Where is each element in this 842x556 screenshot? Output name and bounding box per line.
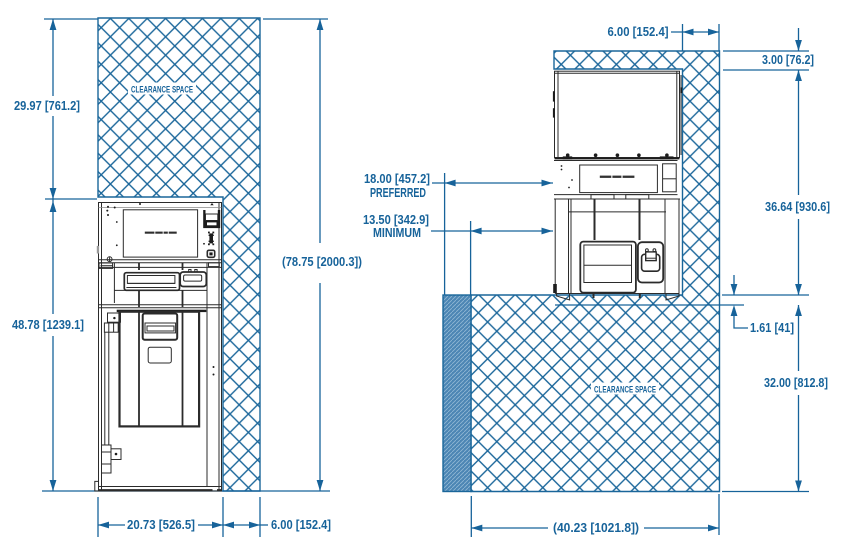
svg-text:PREFERRED: PREFERRED: [370, 185, 426, 200]
svg-text:18.00 [457.2]: 18.00 [457.2]: [364, 171, 430, 186]
svg-text:MINIMUM: MINIMUM: [373, 225, 421, 240]
svg-text:6.00 [152.4]: 6.00 [152.4]: [271, 517, 331, 532]
svg-text:36.64 [930.6]: 36.64 [930.6]: [765, 199, 830, 214]
svg-text:20.73 [526.5]: 20.73 [526.5]: [127, 517, 195, 532]
svg-text:CLEARANCE SPACE: CLEARANCE SPACE: [131, 84, 193, 94]
svg-text:(78.75 [2000.3]): (78.75 [2000.3]): [282, 254, 362, 269]
svg-text:6.00 [152.4]: 6.00 [152.4]: [608, 24, 669, 39]
svg-text:29.97 [761.2]: 29.97 [761.2]: [14, 98, 80, 113]
svg-text:1.61 [41]: 1.61 [41]: [750, 320, 794, 335]
svg-text:CLEARANCE SPACE: CLEARANCE SPACE: [594, 384, 656, 394]
svg-text:3.00 [76.2]: 3.00 [76.2]: [762, 52, 814, 67]
svg-text:48.78 [1239.1]: 48.78 [1239.1]: [12, 317, 84, 332]
svg-text:(40.23 [1021.8]): (40.23 [1021.8]): [553, 520, 639, 535]
svg-text:32.00 [812.8]: 32.00 [812.8]: [764, 375, 828, 390]
